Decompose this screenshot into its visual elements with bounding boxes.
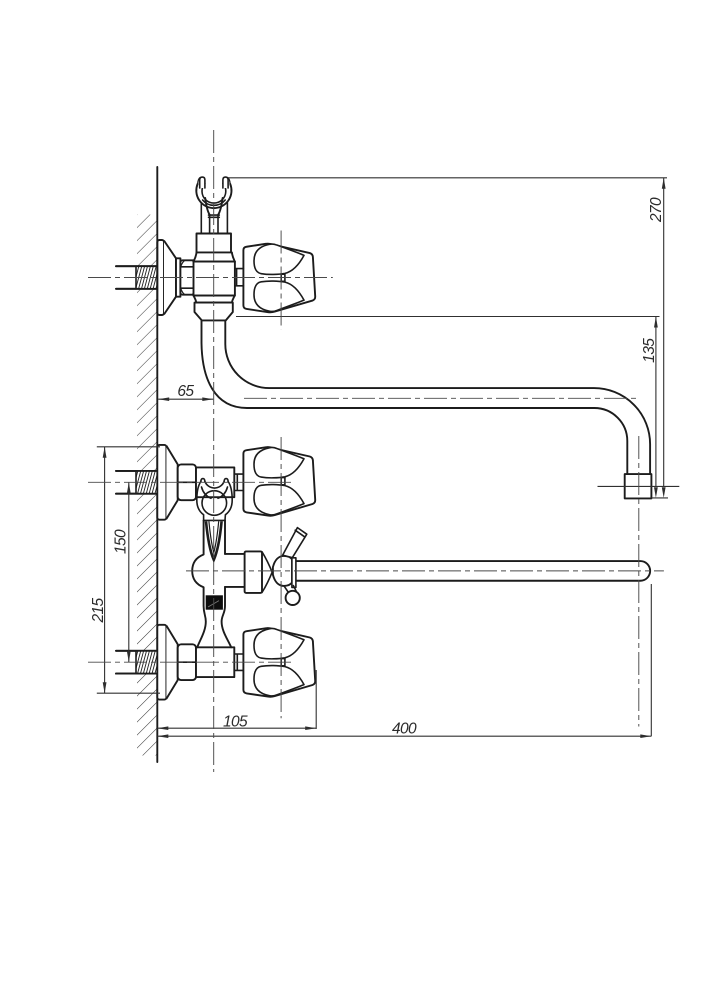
svg-text:135: 135 <box>641 338 658 363</box>
svg-text:270: 270 <box>648 197 665 223</box>
svg-text:150: 150 <box>113 529 130 554</box>
svg-text:400: 400 <box>392 721 417 738</box>
svg-text:65: 65 <box>177 383 194 400</box>
